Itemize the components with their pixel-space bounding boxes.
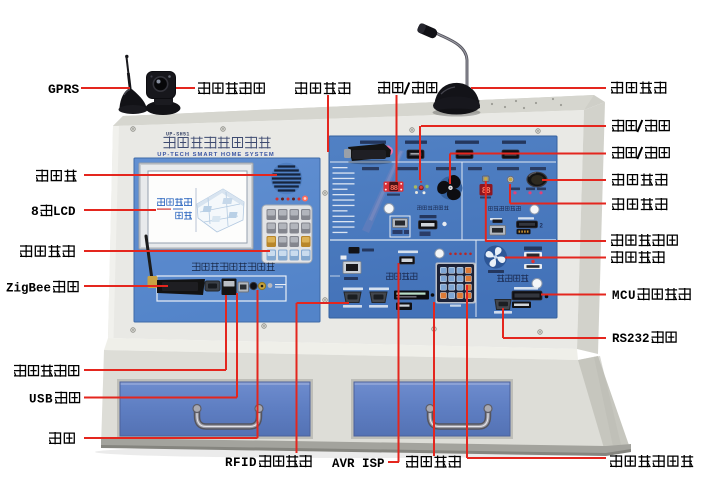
svg-text:8: 8 bbox=[31, 204, 39, 219]
svg-text:ZigBee: ZigBee bbox=[6, 282, 51, 296]
svg-text:RFID: RFID bbox=[225, 456, 257, 470]
svg-text:GPRS: GPRS bbox=[48, 82, 79, 97]
svg-text:MCU: MCU bbox=[612, 289, 636, 303]
svg-text:USB: USB bbox=[29, 393, 53, 407]
svg-text:UP-TECH SMART HOME SYSTEM: UP-TECH SMART HOME SYSTEM bbox=[157, 152, 274, 158]
svg-text:88: 88 bbox=[390, 183, 398, 192]
svg-text:AVR ISP: AVR ISP bbox=[332, 457, 385, 471]
svg-text:LCD: LCD bbox=[53, 205, 76, 219]
svg-text:RS232: RS232 bbox=[612, 332, 650, 346]
